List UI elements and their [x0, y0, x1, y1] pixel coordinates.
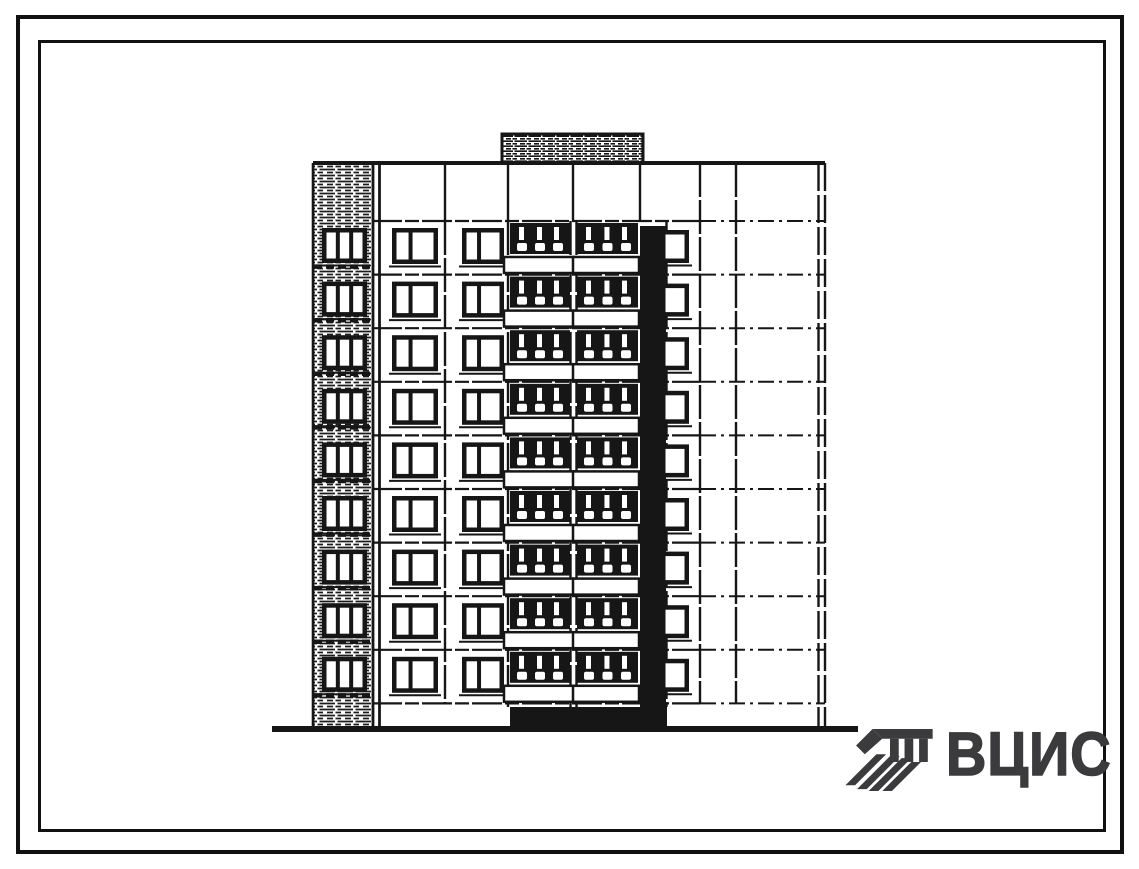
- vcis-logo: ВЦИС: [843, 729, 1115, 793]
- inner-frame: [38, 40, 1106, 832]
- catalog-page: { "colors": { "ink": "#161616", "paper":…: [0, 0, 1139, 869]
- vcis-logo-text: ВЦИС: [946, 724, 1112, 786]
- logo-icon-shape: [845, 729, 932, 791]
- hatched-panel-mark-icon: [843, 729, 937, 793]
